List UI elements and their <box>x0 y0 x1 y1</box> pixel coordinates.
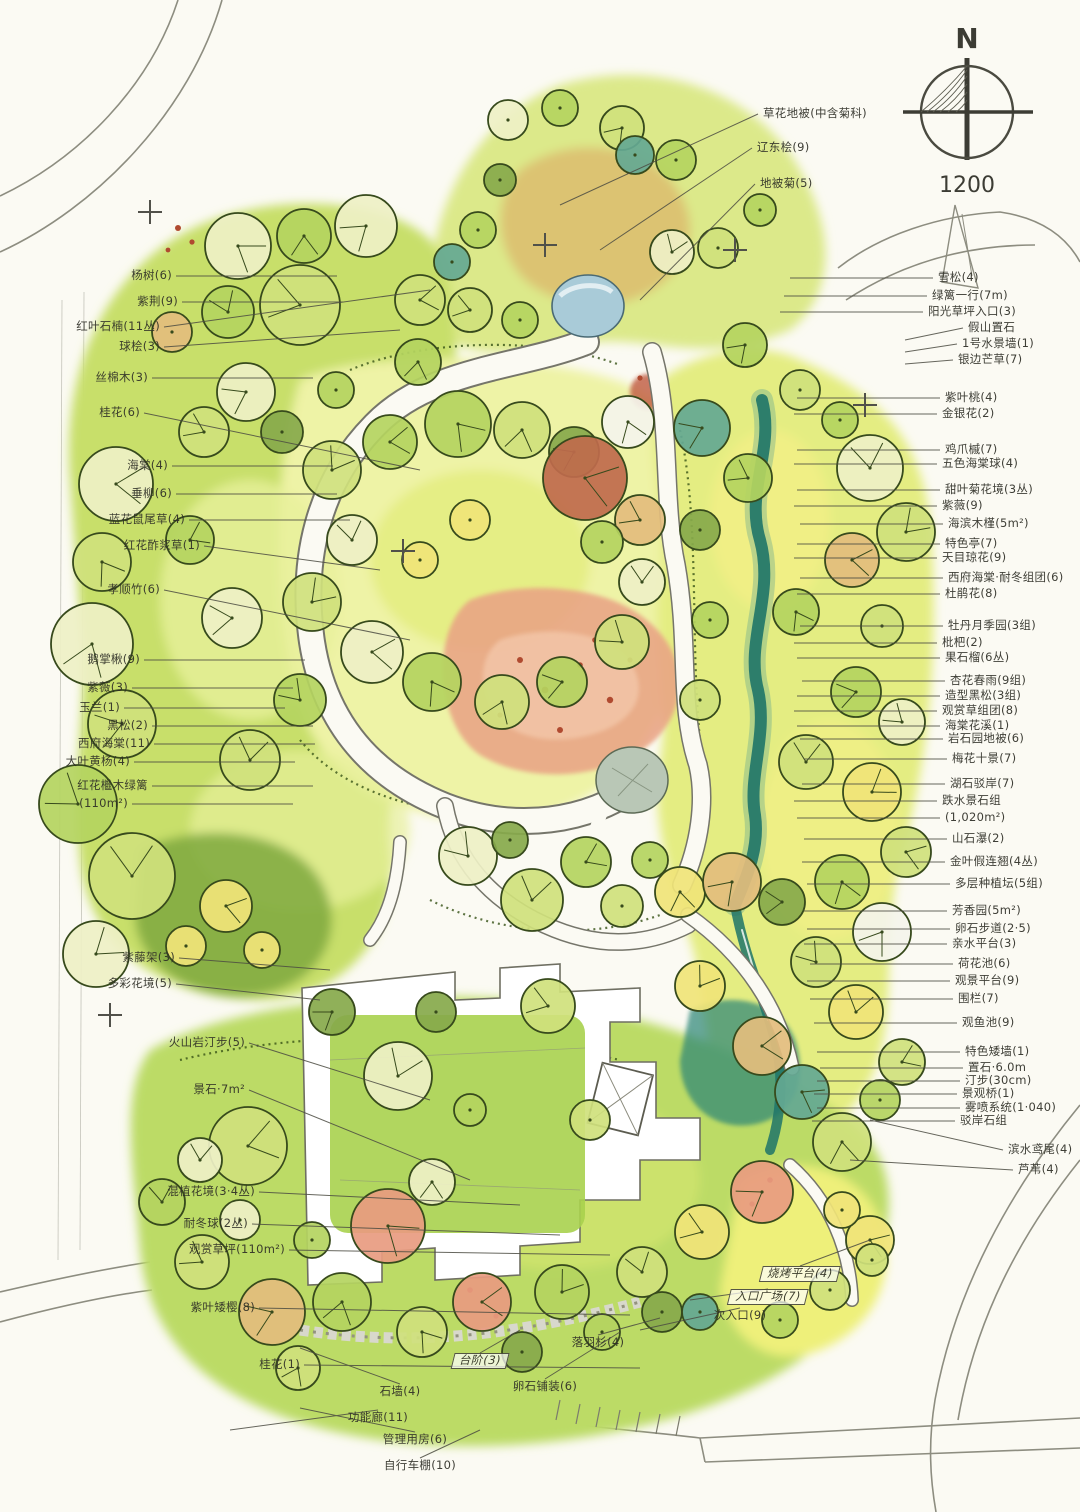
tree-canopy <box>434 244 470 280</box>
landscape-plan-page: N 1200 杨树(6)紫荆(9)红叶石楠(11丛)球桧(3)丝棉木(3)桂花(… <box>0 0 1080 1512</box>
tree-canopy <box>733 1017 791 1075</box>
tree-canopy <box>825 533 879 587</box>
tree-canopy <box>205 213 271 279</box>
tree-canopy <box>395 339 441 385</box>
tree-canopy <box>632 842 668 878</box>
tree-canopy <box>581 521 623 563</box>
tree-canopy <box>773 589 819 635</box>
tree-canopy <box>217 363 275 421</box>
tree-canopy <box>341 621 403 683</box>
tree-canopy <box>881 827 931 877</box>
tree-canopy <box>502 302 538 338</box>
tree-canopy <box>475 675 529 729</box>
tree-canopy <box>363 415 417 469</box>
tree-canopy <box>318 372 354 408</box>
tree-canopy <box>492 822 528 858</box>
tree-canopy <box>450 500 490 540</box>
tree-canopy <box>829 985 883 1039</box>
tree-canopy <box>542 90 578 126</box>
tree-canopy <box>244 932 280 968</box>
tree-canopy <box>856 1244 888 1276</box>
tree-canopy <box>642 1292 682 1332</box>
tree-canopy <box>680 510 720 550</box>
tree-canopy <box>595 615 649 669</box>
tree-canopy <box>675 961 725 1011</box>
tree-canopy <box>655 867 705 917</box>
tree-canopy <box>220 1200 260 1240</box>
tree-canopy <box>453 1273 511 1331</box>
tree-canopy <box>813 1113 871 1171</box>
tree-canopy <box>397 1307 447 1357</box>
tree-canopy <box>602 396 654 448</box>
tree-canopy <box>779 735 833 789</box>
tree-canopy <box>425 391 491 457</box>
tree-canopy <box>488 100 528 140</box>
tree-canopy <box>744 194 776 226</box>
tree-canopy <box>63 921 129 987</box>
tree-canopy <box>448 288 492 332</box>
tree-canopy <box>674 400 730 456</box>
tree-canopy <box>877 503 935 561</box>
tree-canopy <box>537 657 587 707</box>
tree-canopy <box>824 1192 860 1228</box>
tree-canopy <box>692 602 728 638</box>
tree-canopy <box>601 885 643 927</box>
tree-canopy <box>879 1039 925 1085</box>
tree-canopy <box>680 680 720 720</box>
tree-canopy <box>209 1107 287 1185</box>
tree-canopy <box>502 1332 542 1372</box>
tree-canopy <box>698 228 738 268</box>
tree-canopy <box>616 136 654 174</box>
tree-canopy <box>39 765 117 843</box>
tree-canopy <box>73 533 131 591</box>
tree-canopy <box>89 833 175 919</box>
tree-canopy <box>79 447 153 521</box>
tree-canopy <box>202 588 262 648</box>
tree-canopy <box>200 880 252 932</box>
tree-canopy <box>313 1273 371 1331</box>
tree-canopy <box>723 323 767 367</box>
tree-canopy <box>260 265 340 345</box>
tree-canopy <box>274 674 326 726</box>
tree-canopy <box>703 853 761 911</box>
plan-drawing: N 1200 <box>0 0 1080 1512</box>
tree-canopy <box>402 542 438 578</box>
tree-canopy <box>501 869 563 931</box>
tree-canopy <box>179 407 229 457</box>
tree-canopy <box>561 837 611 887</box>
tree-canopy <box>202 286 254 338</box>
tree-canopy <box>283 573 341 631</box>
tree-canopy <box>51 603 133 685</box>
tree-canopy <box>682 1294 718 1330</box>
tree-canopy <box>822 402 858 438</box>
tree-canopy <box>166 516 214 564</box>
tree-canopy <box>403 653 461 711</box>
tree-canopy <box>327 515 377 565</box>
tree-canopy <box>261 411 303 453</box>
tree-canopy <box>494 402 550 458</box>
tree-canopy <box>780 370 820 410</box>
tree-canopy <box>416 992 456 1032</box>
tree-canopy <box>675 1205 729 1259</box>
tree-canopy <box>724 454 772 502</box>
tree-canopy <box>239 1279 305 1345</box>
tree-canopy <box>775 1065 829 1119</box>
tree-canopy <box>810 1270 850 1310</box>
tree-canopy <box>175 1235 229 1289</box>
tree-canopy <box>843 763 901 821</box>
tree-canopy <box>584 1314 620 1350</box>
tree-canopy <box>303 441 361 499</box>
tree-canopy <box>656 140 696 180</box>
tree-canopy <box>409 1159 455 1205</box>
tree-canopy <box>837 435 903 501</box>
tree-canopy <box>617 1247 667 1297</box>
tree-canopy <box>762 1302 798 1338</box>
tree-canopy <box>543 436 627 520</box>
tree-canopy <box>619 559 665 605</box>
tree-canopy <box>395 275 445 325</box>
tree-canopy <box>853 903 911 961</box>
north-arrow: N 1200 <box>903 22 1033 198</box>
tree-canopy <box>831 667 881 717</box>
north-letter: N <box>955 22 978 55</box>
tree-canopy <box>309 989 355 1035</box>
tree-canopy <box>364 1042 432 1110</box>
scale-text: 1200 <box>939 173 995 198</box>
tree-canopy <box>521 979 575 1033</box>
tree-canopy <box>277 209 331 263</box>
tree-canopy <box>294 1222 330 1258</box>
tree-canopy <box>178 1138 222 1182</box>
tree-canopy <box>484 164 516 196</box>
tree-canopy <box>759 879 805 925</box>
tree-canopy <box>220 730 280 790</box>
tree-canopy <box>454 1094 486 1126</box>
tree-canopy <box>570 1100 610 1140</box>
tree-canopy <box>335 195 397 257</box>
tree-canopy <box>731 1161 793 1223</box>
tree-canopy <box>815 855 869 909</box>
tree-canopy <box>879 699 925 745</box>
tree-canopy <box>535 1265 589 1319</box>
tree-canopy <box>439 827 497 885</box>
tree-canopy <box>460 212 496 248</box>
tree-canopy <box>88 690 156 758</box>
tree-canopy <box>139 1179 185 1225</box>
tree-canopy <box>860 1080 900 1120</box>
